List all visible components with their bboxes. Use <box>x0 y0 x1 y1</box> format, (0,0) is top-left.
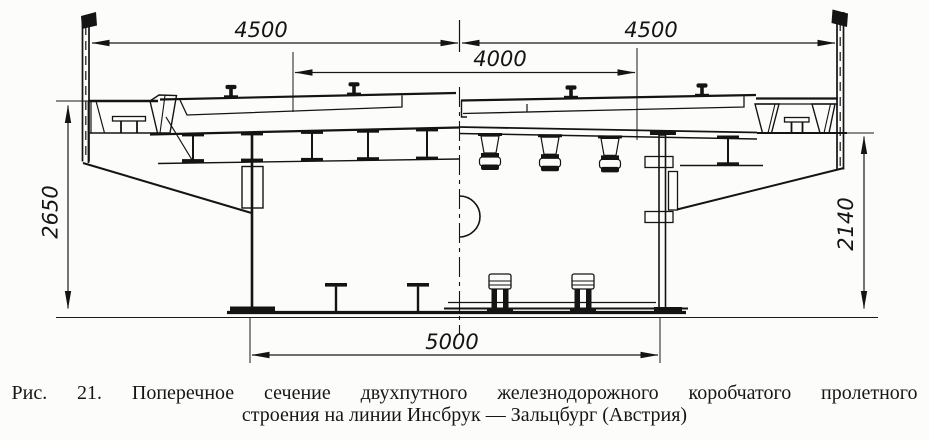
deck-top-line <box>160 93 456 100</box>
caption-line-1: Рис. 21. Поперечное сечение двухпутного … <box>12 382 918 404</box>
dim-label-top-left: 4500 <box>234 18 287 42</box>
bottom-t-stiffener <box>407 283 429 313</box>
left-walkway <box>88 95 177 163</box>
right-cantilever-underside <box>677 168 844 210</box>
closed-rib <box>478 133 502 170</box>
rail <box>564 85 578 98</box>
stringer-beam <box>301 131 323 162</box>
bottom-t-stiffener <box>325 283 347 313</box>
dim-label-top-right: 4500 <box>624 18 677 42</box>
box-girder-body <box>83 131 844 313</box>
post-top-flag <box>81 12 97 29</box>
right-web-top-flange <box>650 131 676 135</box>
manhole-semicircle <box>460 196 480 237</box>
stringer-beam <box>416 128 438 160</box>
scanned-book-figure: 4500 4500 4000 2650 2140 5000 <box>0 0 929 440</box>
rail <box>695 83 709 96</box>
left-half-deck <box>150 93 459 164</box>
cable-trough-support <box>785 118 810 123</box>
dim-label-height-left: 2650 <box>39 185 63 238</box>
rail <box>347 82 361 95</box>
closed-rib <box>538 134 562 171</box>
caption-line-2: строения на линии Инсбрук — Зальцбург (А… <box>0 404 929 426</box>
post-top-flag <box>832 10 849 28</box>
right-half-deck <box>459 95 757 172</box>
right-walkway <box>755 99 847 134</box>
cable-trough-support <box>113 117 146 122</box>
figure-caption: Рис. 21. Поперечное сечение двухпутного … <box>0 382 929 426</box>
deck-plate <box>459 127 757 133</box>
closed-rib <box>598 135 622 172</box>
center-step <box>462 101 468 118</box>
stringer-beam <box>357 129 379 160</box>
right-curb <box>755 104 779 133</box>
deck-top-line <box>461 95 756 101</box>
stringer-beam <box>717 136 739 166</box>
bridge-cross-section-drawing: 4500 4500 4000 2650 2140 5000 <box>0 0 929 380</box>
bottom-closed-rib <box>570 274 596 313</box>
rail <box>224 85 238 98</box>
right-curb-outer <box>812 104 835 133</box>
dim-label-track-spacing: 4000 <box>473 47 526 71</box>
right-railing-post <box>832 10 849 170</box>
right-web-stiffener <box>669 172 678 211</box>
dim-label-height-right: 2140 <box>834 197 858 250</box>
left-web-bottom-flange <box>230 307 275 314</box>
bottom-closed-rib <box>487 274 513 313</box>
right-web <box>659 135 666 313</box>
dim-label-bottom-width: 5000 <box>425 330 478 354</box>
left-cantilever-underside <box>83 163 252 213</box>
